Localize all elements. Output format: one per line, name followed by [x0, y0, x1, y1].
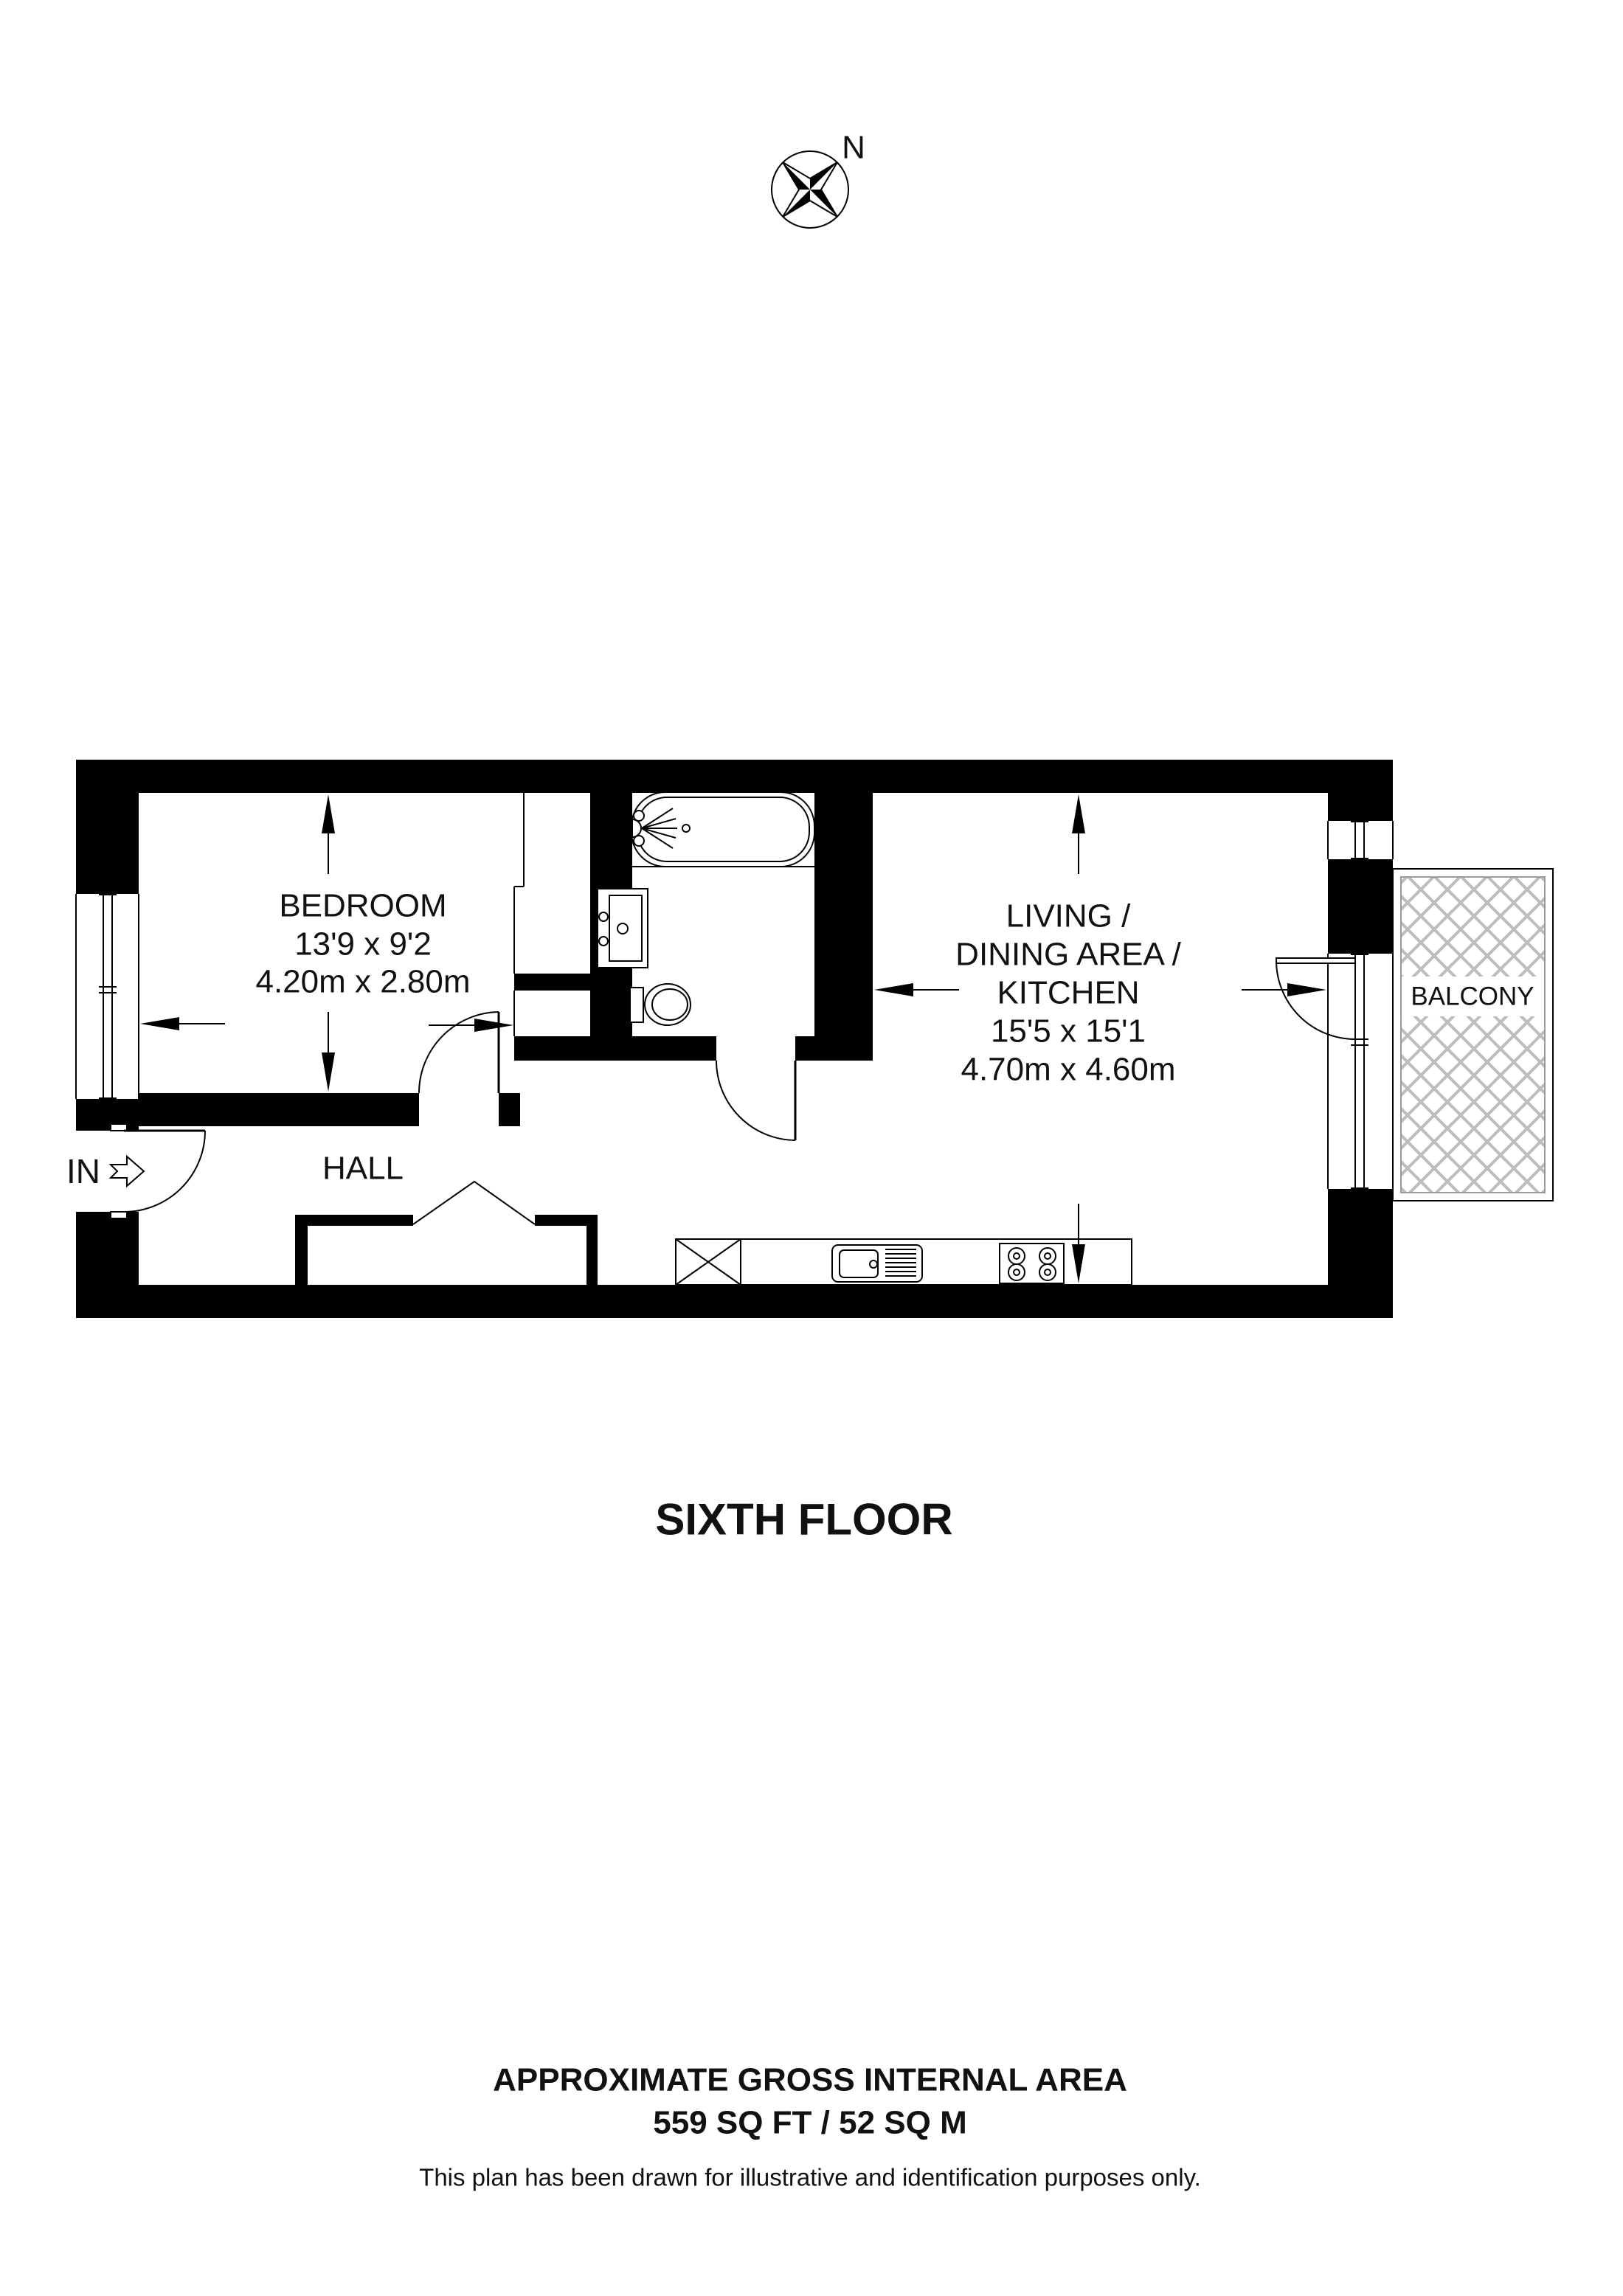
sink-vanity	[598, 889, 648, 968]
cistern	[630, 988, 643, 1022]
wall-bottom	[76, 1285, 1393, 1318]
bedroom-size-metric: 4.20m x 2.80m	[255, 964, 470, 1000]
entrance-label: IN	[66, 1152, 100, 1190]
floorplan-canvas: N	[0, 0, 1623, 2296]
living-label-line3: KITCHEN	[997, 975, 1139, 1011]
living-label-line2: DINING AREA /	[955, 937, 1181, 973]
wall-bedroom-south-west	[139, 1093, 419, 1126]
closet-wall-left	[295, 1215, 308, 1285]
balcony-door-swing	[1276, 960, 1355, 1039]
kitchen-sink	[832, 1245, 922, 1282]
kitchen-hob	[1000, 1244, 1064, 1283]
wall-left-mid	[76, 1099, 139, 1131]
wall-right-lower	[1328, 1189, 1393, 1318]
bedroom-label: BEDROOM	[279, 888, 446, 924]
living-size-metric: 4.70m x 4.60m	[961, 1052, 1175, 1088]
window-living-right-small	[1328, 821, 1393, 859]
footer-area-value: 559 SQ FT / 52 SQ M	[653, 2105, 966, 2141]
wall-top	[76, 760, 1393, 793]
hall-label: HALL	[322, 1151, 404, 1187]
entrance-marker: IN	[66, 1152, 144, 1190]
footer-disclaimer: This plan has been drawn for illustrativ…	[419, 2164, 1201, 2191]
wall-bedroom-south-east	[499, 1093, 520, 1126]
drainer-lines	[885, 1249, 916, 1276]
dimension-arrows	[140, 794, 1326, 1283]
wall-right-upper	[1328, 760, 1393, 821]
floorplan-page: N	[0, 0, 1623, 2296]
partition-lines	[514, 793, 524, 1036]
closet-wall-top-west	[308, 1215, 413, 1226]
door-hinge-plate	[111, 1212, 127, 1218]
living-label-line1: LIVING /	[1006, 898, 1131, 934]
balcony-label: BALCONY	[1411, 982, 1534, 1011]
balcony-area: BALCONY	[1393, 869, 1553, 1201]
bathtub	[631, 792, 814, 867]
wall-left-lower	[76, 1212, 139, 1318]
window-balcony-glazing	[1328, 954, 1393, 1189]
kitchen-counter	[676, 1239, 1132, 1285]
wall-bathroom-east	[814, 793, 873, 1061]
entrance-arrow-icon	[111, 1156, 144, 1186]
balcony-door-leaf	[1276, 958, 1355, 963]
toilet	[630, 984, 691, 1025]
wall-bathroom-south	[514, 1036, 716, 1061]
wall-bathroom-south-stub	[795, 1036, 814, 1061]
closet-wall-top-east	[535, 1215, 598, 1226]
closet-bifold-door	[413, 1182, 535, 1224]
drain-icon	[617, 923, 628, 934]
closet-wall-right	[586, 1226, 598, 1285]
wall-wardrobe-connector	[514, 974, 590, 991]
bedroom-size-imperial: 13'9 x 9'2	[294, 926, 432, 963]
compass-north-label: N	[842, 130, 865, 166]
footer-area-title: APPROXIMATE GROSS INTERNAL AREA	[493, 2062, 1127, 2098]
tap-icon	[599, 937, 608, 946]
living-size-imperial: 15'5 x 15'1	[991, 1013, 1146, 1050]
balcony-hatch	[1401, 877, 1545, 1193]
compass-rose: N	[772, 130, 865, 229]
wall-left-upper	[76, 760, 139, 894]
footer: APPROXIMATE GROSS INTERNAL AREA 559 SQ F…	[419, 2062, 1201, 2191]
bathroom-door-swing	[716, 1061, 795, 1140]
balcony-door	[1276, 958, 1355, 1039]
window-bedroom-left	[76, 894, 139, 1099]
tap-icon	[599, 912, 608, 921]
room-labels: BEDROOM 13'9 x 9'2 4.20m x 2.80m LIVING …	[255, 888, 1181, 1187]
drain-icon	[682, 825, 690, 832]
bathroom-door	[716, 1061, 795, 1140]
floor-title: SIXTH FLOOR	[655, 1495, 952, 1544]
wall-right-mid	[1328, 859, 1393, 954]
